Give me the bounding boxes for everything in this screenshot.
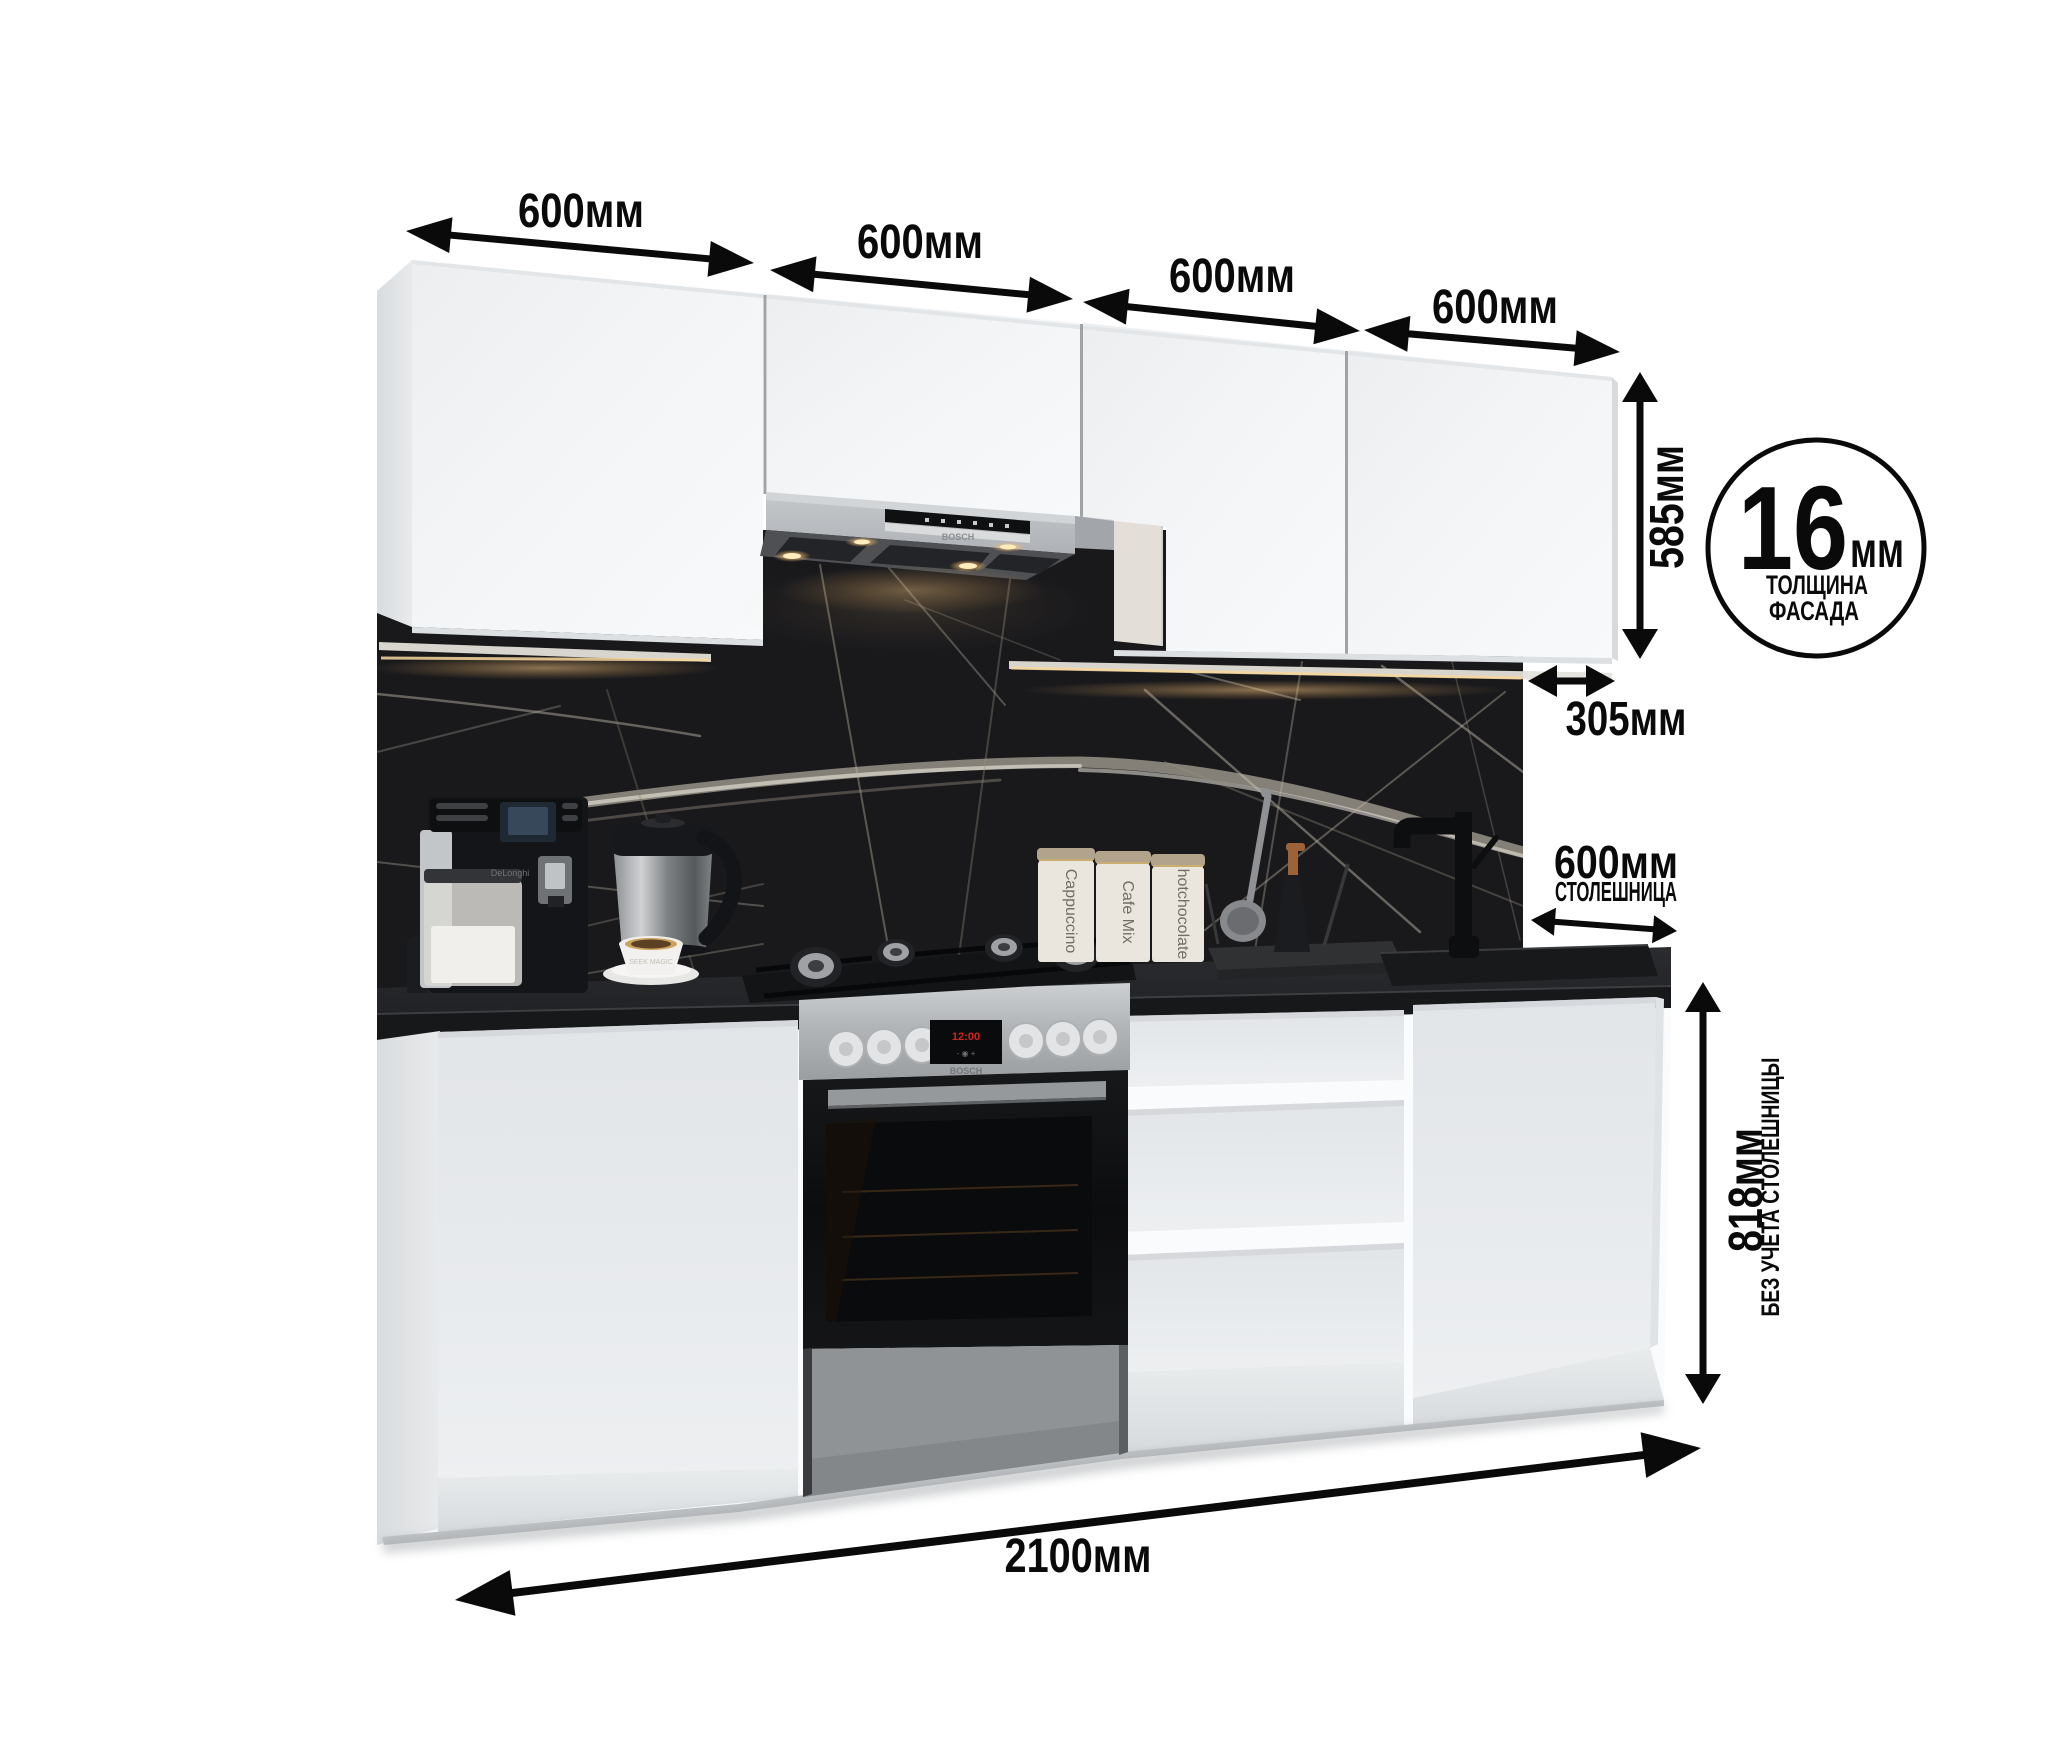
svg-text:BOSCH: BOSCH xyxy=(942,532,975,542)
svg-text:12:00: 12:00 xyxy=(952,1031,980,1043)
svg-text:600мм: 600мм xyxy=(1432,281,1558,334)
svg-text:hotchocolate: hotchocolate xyxy=(1174,869,1191,960)
svg-text:600мм: 600мм xyxy=(1169,250,1295,303)
svg-text:DeLonghi: DeLonghi xyxy=(491,868,530,878)
svg-text:СТОЛЕШНИЦА: СТОЛЕШНИЦА xyxy=(1555,876,1677,907)
svg-text:Cafe Mix: Cafe Mix xyxy=(1119,880,1136,943)
svg-text:600мм: 600мм xyxy=(518,185,644,238)
svg-text:600мм: 600мм xyxy=(857,216,983,269)
svg-text:- ◉ +: - ◉ + xyxy=(957,1049,976,1058)
svg-text:Cappuccino: Cappuccino xyxy=(1062,869,1079,954)
svg-text:ФАСАДА: ФАСАДА xyxy=(1769,596,1859,626)
svg-text:2100мм: 2100мм xyxy=(1005,1530,1152,1583)
svg-text:305мм: 305мм xyxy=(1566,693,1687,746)
svg-text:SEEK MAGIC: SEEK MAGIC xyxy=(629,959,673,966)
svg-text:585мм: 585мм xyxy=(1641,445,1694,569)
svg-text:БЕЗ УЧЕТА СТОЛЕШНИЦЫ: БЕЗ УЧЕТА СТОЛЕШНИЦЫ xyxy=(1757,1058,1785,1317)
svg-text:BOSCH: BOSCH xyxy=(950,1066,983,1076)
